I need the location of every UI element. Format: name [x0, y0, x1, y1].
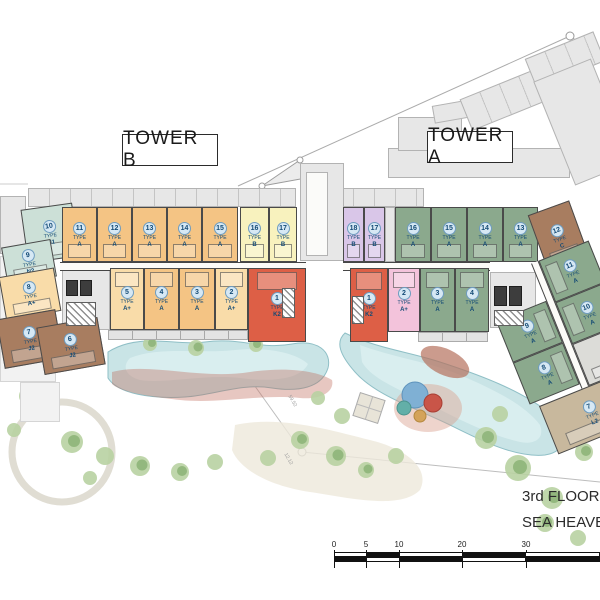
- unit-type-code: A: [483, 242, 487, 248]
- unit-b-17: 17 TYPE B: [269, 207, 297, 262]
- unit-type-label: TYPE: [120, 300, 133, 305]
- unit-num: 18: [347, 222, 360, 235]
- unit-type-code: A+: [27, 300, 36, 307]
- unit-type-label: TYPE: [225, 300, 238, 305]
- unit-num: 16: [248, 222, 261, 235]
- unit-num: 14: [479, 222, 492, 235]
- unit-num: 4: [466, 287, 479, 300]
- plan-title: 3rd FLOOR P SEA HEAVE: [522, 484, 600, 537]
- unit-type-code: A: [147, 242, 151, 248]
- unit-b-11: 11 TYPE A: [62, 207, 97, 262]
- floor-plan-canvas: { "labels": { "type": "TYPE" }, "palette…: [0, 0, 600, 600]
- unit-type-label: TYPE: [347, 236, 360, 241]
- unit-type-label: TYPE: [155, 300, 168, 305]
- unit-b-16: 16 TYPE B: [240, 207, 269, 262]
- kids-pool-teal: [397, 401, 411, 415]
- unit-b-13: 13 TYPE A: [132, 207, 167, 262]
- unit-type-label: TYPE: [362, 306, 375, 311]
- elevator-shaft: [80, 280, 92, 296]
- unit-b-1: 1 TYPE K2: [248, 268, 306, 342]
- unit-type-label: TYPE: [143, 236, 156, 241]
- unit-type-label: TYPE: [478, 236, 491, 241]
- unit-num: 17: [368, 222, 381, 235]
- unit-a-3: 3 TYPE A: [420, 268, 455, 332]
- unit-type-code: A: [530, 338, 536, 345]
- unit-type-code: B: [281, 242, 285, 248]
- unit-type-code: A: [447, 242, 451, 248]
- unit-type-code: A+: [123, 306, 131, 312]
- unit-num: 13: [143, 222, 156, 235]
- unit-num: 15: [443, 222, 456, 235]
- unit-num: 5: [121, 286, 134, 299]
- unit-type-code: A+: [228, 306, 236, 312]
- unit-type-label: TYPE: [431, 301, 444, 306]
- plan-title-line1: 3rd FLOOR P: [522, 484, 600, 510]
- unit-type-code: A: [411, 242, 415, 248]
- unit-type-code: K2: [365, 312, 373, 318]
- unit-num: 16: [407, 222, 420, 235]
- unit-type-code: A: [182, 242, 186, 248]
- unit-num: 17: [277, 222, 290, 235]
- scale-tick-0: 0: [332, 540, 336, 549]
- unit-a-15: 15 TYPE A: [431, 207, 467, 262]
- unit-num: 1: [363, 292, 376, 305]
- unit-num: 2: [225, 286, 238, 299]
- stair-tower-b-east: [282, 288, 295, 318]
- shaft-gap-tower-a: [385, 207, 395, 262]
- unit-type-label: TYPE: [190, 300, 203, 305]
- unit-num: 3: [431, 287, 444, 300]
- unit-type-label: TYPE: [514, 236, 527, 241]
- unit-type-code: K2: [273, 312, 281, 318]
- unit-type-label: TYPE: [276, 236, 289, 241]
- unit-type-label: TYPE: [248, 236, 261, 241]
- balcony-lower-tower-b: [108, 330, 248, 340]
- unit-type-code: A+: [400, 307, 408, 313]
- tower-a-label-text: TOWER A: [428, 125, 512, 169]
- elevator-shaft: [509, 286, 522, 306]
- link-block-corridor: [306, 172, 328, 256]
- stair-tower-a-west: [352, 296, 364, 324]
- pavilion: [353, 393, 385, 424]
- scale-bar: [334, 552, 600, 564]
- unit-type-code: A: [470, 307, 474, 313]
- balcony-strip-tower-a: [332, 188, 424, 207]
- unit-type-code: A: [77, 242, 81, 248]
- unit-type-label: TYPE: [213, 236, 226, 241]
- tower-a-label: TOWER A: [427, 131, 513, 163]
- unit-type-code: J2: [69, 352, 77, 359]
- unit-b-14: 14 TYPE A: [167, 207, 202, 262]
- unit-num: 11: [73, 222, 86, 235]
- unit-type-label: TYPE: [406, 236, 419, 241]
- unit-type-code: A: [435, 307, 439, 313]
- elevator-shaft: [494, 286, 507, 306]
- unit-type-label: TYPE: [442, 236, 455, 241]
- scale-tick-10: 10: [395, 540, 404, 549]
- ghost-block-southwest-2: [20, 382, 60, 422]
- unit-a-17: 17 TYPE B: [364, 207, 385, 262]
- unit-type-code: B: [372, 242, 376, 248]
- unit-type-code: A: [112, 242, 116, 248]
- stair-tower-b: [66, 302, 96, 326]
- unit-type-code: B: [351, 242, 355, 248]
- unit-num: 4: [155, 286, 168, 299]
- plan-title-line2: SEA HEAVE: [522, 510, 600, 536]
- unit-a-14: 14 TYPE A: [467, 207, 503, 262]
- unit-a-2: 2 TYPE A+: [388, 268, 420, 332]
- unit-b-12: 12 TYPE A: [97, 207, 132, 262]
- scale-bar-bottom-row: [334, 557, 600, 562]
- kids-pool-yellow: [414, 410, 426, 422]
- unit-num: 12: [108, 222, 121, 235]
- unit-type-label: TYPE: [368, 236, 381, 241]
- balcony-lower-tower-a: [418, 332, 488, 342]
- unit-num: 13: [514, 222, 527, 235]
- unit-a-4: 4 TYPE A: [455, 268, 489, 332]
- unit-type-code: A: [218, 242, 222, 248]
- unit-type-label: TYPE: [73, 236, 86, 241]
- unit-type-label: TYPE: [108, 236, 121, 241]
- scale-tick-5: 5: [364, 540, 368, 549]
- unit-type-label: TYPE: [397, 301, 410, 306]
- unit-type-code: A: [518, 242, 522, 248]
- elevator-shaft: [66, 280, 78, 296]
- unit-type-code: J2: [28, 345, 36, 352]
- tower-b-label-text: TOWER B: [123, 128, 217, 172]
- unit-num: 14: [178, 222, 191, 235]
- tower-b-label: TOWER B: [122, 134, 218, 166]
- scale-tick-20: 20: [458, 540, 467, 549]
- unit-num: 15: [214, 222, 227, 235]
- unit-type-label: TYPE: [465, 301, 478, 306]
- scale-bar-ticks: 0 5 10 20 30: [334, 540, 600, 550]
- unit-b-15: 15 TYPE A: [202, 207, 238, 262]
- stair-tower-a: [494, 310, 524, 326]
- unit-type-label: TYPE: [178, 236, 191, 241]
- unit-type-code: A: [589, 319, 595, 326]
- unit-num: 2: [398, 287, 411, 300]
- unit-type-code: B: [252, 242, 256, 248]
- unit-type-code: A: [195, 306, 199, 312]
- unit-type-code: A: [547, 379, 553, 386]
- unit-b-4: 4 TYPE A: [144, 268, 179, 330]
- kids-pool-red: [424, 394, 442, 412]
- unit-type-code: A: [159, 306, 163, 312]
- scale-tick-30: 30: [522, 540, 531, 549]
- unit-num: 3: [191, 286, 204, 299]
- unit-b-5: 5 TYPE A+: [110, 268, 144, 330]
- unit-type-code: L2: [591, 418, 600, 426]
- unit-a-16: 16 TYPE A: [395, 207, 431, 262]
- unit-type-code: A: [573, 277, 579, 284]
- unit-b-3: 3 TYPE A: [179, 268, 215, 330]
- unit-b-2: 2 TYPE A+: [215, 268, 248, 330]
- unit-a-18: 18 TYPE B: [343, 207, 364, 262]
